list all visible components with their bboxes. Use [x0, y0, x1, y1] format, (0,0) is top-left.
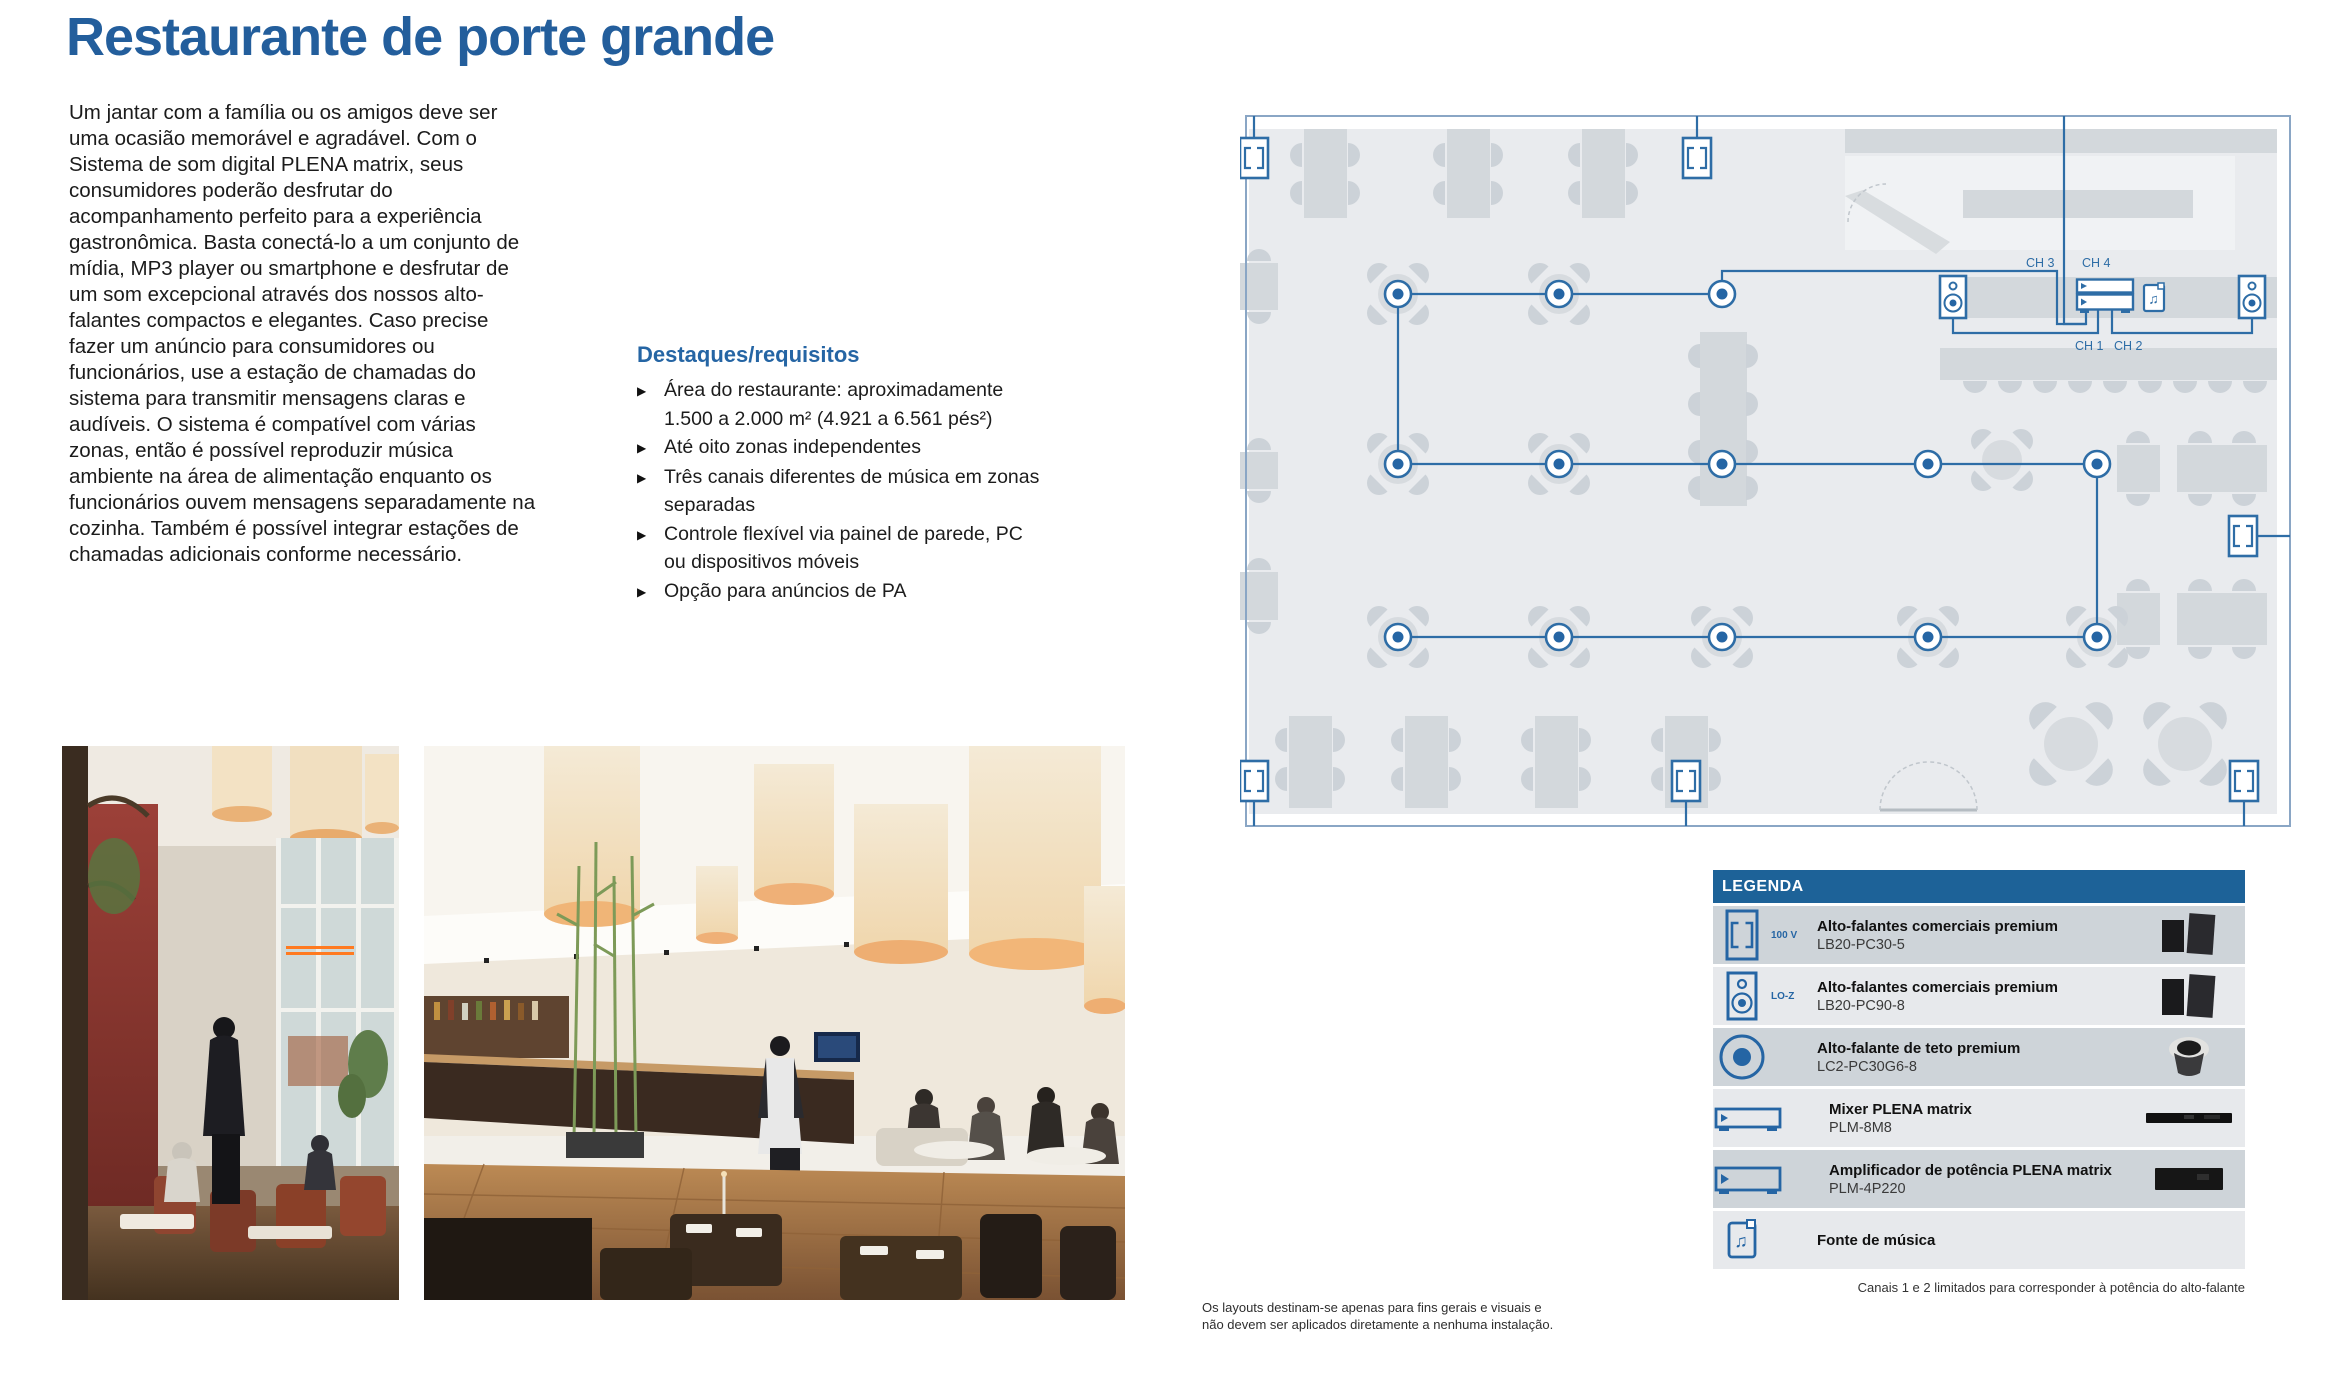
ceiling-speaker-icon	[1385, 624, 1411, 650]
floor-plan-diagram: ♫	[1240, 110, 2306, 846]
ceiling-speaker-icon	[1713, 1033, 1771, 1081]
legend-header: LEGENDA	[1713, 870, 2245, 903]
list-item: ▶Até oito zonas independentes	[637, 433, 1067, 463]
legend-row: Mixer PLENA matrix PLM-8M8	[1713, 1089, 2245, 1147]
channel-label-ch1: CH 1	[2075, 339, 2104, 353]
ceiling-speaker-icon	[1385, 451, 1411, 477]
wall-speaker-100v-icon	[2229, 516, 2257, 556]
icon-label: 100 V	[1771, 930, 1815, 941]
box-speaker-loz-icon	[1940, 276, 1966, 318]
highlights-heading: Destaques/requisitos	[637, 342, 860, 368]
legend-row: 100 V Alto-falantes comerciais premium L…	[1713, 906, 2245, 964]
list-item: ▶Área do restaurante: aproximadamente 1.…	[637, 376, 1067, 433]
wall-speaker-100v-icon	[1713, 909, 1771, 961]
wall-speaker-100v-icon	[2230, 761, 2258, 801]
legend-title: Mixer PLENA matrix	[1829, 1100, 2133, 1119]
bullet-icon: ▶	[637, 433, 649, 463]
icon-label: LO-Z	[1771, 991, 1815, 1002]
legend-model: PLM-8M8	[1829, 1119, 2133, 1137]
bullet-icon: ▶	[637, 520, 649, 577]
list-item: ▶Três canais diferentes de música em zon…	[637, 463, 1067, 520]
ceiling-speaker-icon	[1709, 281, 1735, 307]
legend-row: LO-Z Alto-falantes comerciais premium LB…	[1713, 967, 2245, 1025]
legend-title: Amplificador de potência PLENA matrix	[1829, 1161, 2133, 1180]
highlights-list: ▶Área do restaurante: aproximadamente 1.…	[637, 376, 1067, 606]
product-photo	[2133, 1035, 2245, 1079]
ceiling-speaker-icon	[2084, 451, 2110, 477]
wall-speaker-100v-icon	[1240, 761, 1268, 801]
bullet-icon: ▶	[637, 376, 649, 433]
box-speaker-loz-icon	[2239, 276, 2265, 318]
bullet-icon: ▶	[637, 463, 649, 520]
channel-label-ch4: CH 4	[2082, 256, 2111, 270]
ceiling-speaker-icon	[2084, 624, 2110, 650]
legend-title: Fonte de música	[1817, 1231, 2133, 1250]
amplifier-icon	[2077, 295, 2133, 314]
page-title: Restaurante de porte grande	[66, 6, 774, 68]
product-photo	[2133, 1110, 2245, 1126]
wall-speaker-100v-icon	[1240, 138, 1268, 178]
restaurant-photo-2	[424, 746, 1125, 1300]
music-source-icon: ♫	[1713, 1218, 1771, 1262]
channel-label-ch3: CH 3	[2026, 256, 2055, 270]
product-photo	[2133, 973, 2245, 1019]
list-item: ▶Opção para anúncios de PA	[637, 577, 1067, 607]
legend-row: ♫ Fonte de música	[1713, 1211, 2245, 1269]
ceiling-speaker-icon	[1546, 281, 1572, 307]
intro-paragraph: Um jantar com a família ou os amigos dev…	[69, 100, 539, 568]
layout-disclaimer: Os layouts destinam-se apenas para fins …	[1202, 1299, 1564, 1333]
legend-model: PLM-4P220	[1829, 1180, 2133, 1198]
wall-speaker-100v-icon	[1672, 761, 1700, 801]
channel-label-ch2: CH 2	[2114, 339, 2143, 353]
legend-panel: LEGENDA 100 V Alto-falantes comerciais p…	[1713, 870, 2245, 1269]
legend-title: Alto-falantes comerciais premium	[1817, 917, 2133, 936]
ceiling-speaker-icon	[1546, 451, 1572, 477]
ceiling-speaker-icon	[1385, 281, 1411, 307]
box-speaker-loz-icon	[1713, 970, 1771, 1022]
svg-text:♫: ♫	[1734, 1231, 1748, 1251]
ceiling-speaker-icon	[1546, 624, 1572, 650]
ceiling-speaker-icon	[1709, 624, 1735, 650]
legend-model: LB20-PC30-5	[1817, 936, 2133, 954]
list-item: ▶Controle flexível via painel de parede,…	[637, 520, 1067, 577]
product-photo	[2133, 1166, 2245, 1192]
wall-speaker-100v-icon	[1683, 138, 1711, 178]
legend-row: Alto-falante de teto premium LC2-PC30G6-…	[1713, 1028, 2245, 1086]
legend-footnote: Canais 1 e 2 limitados para corresponder…	[1713, 1280, 2245, 1295]
legend-model: LB20-PC90-8	[1817, 997, 2133, 1015]
ceiling-speaker-icon	[1915, 451, 1941, 477]
restaurant-photo-1	[62, 746, 399, 1300]
ceiling-speaker-icon	[1915, 624, 1941, 650]
product-photo	[2133, 912, 2245, 958]
bullet-icon: ▶	[637, 577, 649, 607]
music-source-icon	[2144, 283, 2164, 311]
legend-model: LC2-PC30G6-8	[1817, 1058, 2133, 1076]
ceiling-speaker-icon	[1709, 451, 1735, 477]
amplifier-icon	[1713, 1163, 1783, 1195]
mixer-icon	[1713, 1104, 1783, 1132]
brochure-page: Restaurante de porte grande Um jantar co…	[0, 0, 2332, 1376]
legend-row: Amplificador de potência PLENA matrix PL…	[1713, 1150, 2245, 1208]
legend-title: Alto-falantes comerciais premium	[1817, 978, 2133, 997]
legend-title: Alto-falante de teto premium	[1817, 1039, 2133, 1058]
